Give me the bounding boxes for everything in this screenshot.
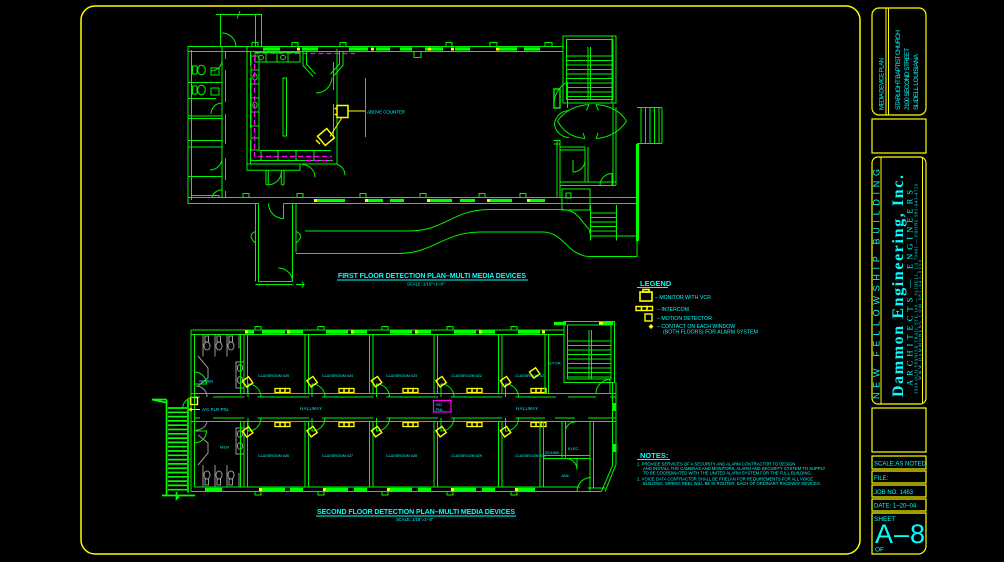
svg-text:STOR.: STOR. — [549, 362, 562, 366]
svg-text:SCALE: 1/16"=1'–0": SCALE: 1/16"=1'–0" — [407, 282, 445, 287]
svg-text:CLASSROOM #24: CLASSROOM #24 — [322, 374, 353, 378]
svg-text:OF: OF — [875, 547, 884, 554]
svg-text:CLASSROOM #26: CLASSROOM #26 — [258, 454, 289, 458]
svg-text:NOTES:: NOTES: — [640, 451, 668, 460]
svg-text:A–8: A–8 — [875, 519, 926, 549]
svg-text:MEN: MEN — [220, 446, 229, 450]
svg-text:MEDIA DEVICE PLAN: MEDIA DEVICE PLAN — [880, 58, 886, 110]
svg-text:FILE:: FILE: — [874, 476, 889, 482]
svg-text:(BOTH FLOORS) FOR ALARM SYSTEM: (BOTH FLOORS) FOR ALARM SYSTEM — [663, 330, 758, 336]
svg-text:SOUND: SOUND — [545, 450, 560, 455]
svg-text:SCALE:AS NOTED: SCALE:AS NOTED — [874, 462, 927, 468]
svg-text:LEGEND: LEGEND — [640, 279, 672, 288]
svg-text:FIRST FLOOR DETECTION PLAN–MUL: FIRST FLOOR DETECTION PLAN–MULTI MEDIA D… — [338, 273, 526, 280]
svg-text:CLASSROOM #23: CLASSROOM #23 — [386, 374, 417, 378]
svg-text:– MOTION DETECTOR: – MOTION DETECTOR — [657, 316, 712, 322]
svg-text:DATE: 1–20–04: DATE: 1–20–04 — [874, 504, 917, 510]
svg-text:CLASSROOM #25: CLASSROOM #25 — [258, 374, 289, 378]
svg-text:ABOVE COUNTER: ABOVE COUNTER — [367, 110, 406, 115]
svg-text:– MONITOR WITH VCR: – MONITOR WITH VCR — [655, 295, 711, 301]
svg-text:PNL: PNL — [436, 407, 445, 412]
svg-text:CLASSROOM #29: CLASSROOM #29 — [451, 454, 482, 458]
svg-text:A/C FLR PNL: A/C FLR PNL — [202, 407, 230, 412]
svg-text:JAN.: JAN. — [561, 473, 570, 478]
svg-text:SCALE: 1/16"=1'–0": SCALE: 1/16"=1'–0" — [396, 517, 434, 522]
svg-text:STARLIGHT BAPTIST CHURCH: STARLIGHT BAPTIST CHURCH — [895, 30, 902, 110]
svg-text:2100 SECOND STREET: 2100 SECOND STREET — [904, 48, 911, 110]
svg-text:ELEC.: ELEC. — [568, 446, 580, 451]
svg-text:BUILDING. WIRING REEL WILL BE: BUILDING. WIRING REEL WILL BE IN ROUTER,… — [643, 481, 821, 486]
svg-text:HALLWAY: HALLWAY — [300, 406, 322, 411]
svg-text:SLIDELL LOUISIANA: SLIDELL LOUISIANA — [913, 53, 920, 110]
svg-text:WWW.DAMMONENG.COM 985-643-000: WWW.DAMMONENG.COM 985-643-0000 — [918, 259, 923, 380]
svg-text:CLASSROOM #30: CLASSROOM #30 — [515, 454, 546, 458]
svg-text:– INTERCOM: – INTERCOM — [657, 307, 689, 313]
svg-text:JOB NO. 1463: JOB NO. 1463 — [874, 490, 914, 496]
svg-text:CLASSROOM #27: CLASSROOM #27 — [322, 454, 353, 458]
svg-text:SECOND FLOOR DETECTION PLAN–MU: SECOND FLOOR DETECTION PLAN–MULTI MEDIA … — [317, 509, 515, 516]
svg-text:CLASSROOM #22: CLASSROOM #22 — [451, 374, 482, 378]
svg-text:TO BE COORDINATED WITH THE UNI: TO BE COORDINATED WITH THE UNITED ALARM … — [643, 471, 812, 476]
svg-text:HALLWAY: HALLWAY — [516, 406, 538, 411]
svg-text:CLASSROOM #28: CLASSROOM #28 — [386, 454, 417, 458]
